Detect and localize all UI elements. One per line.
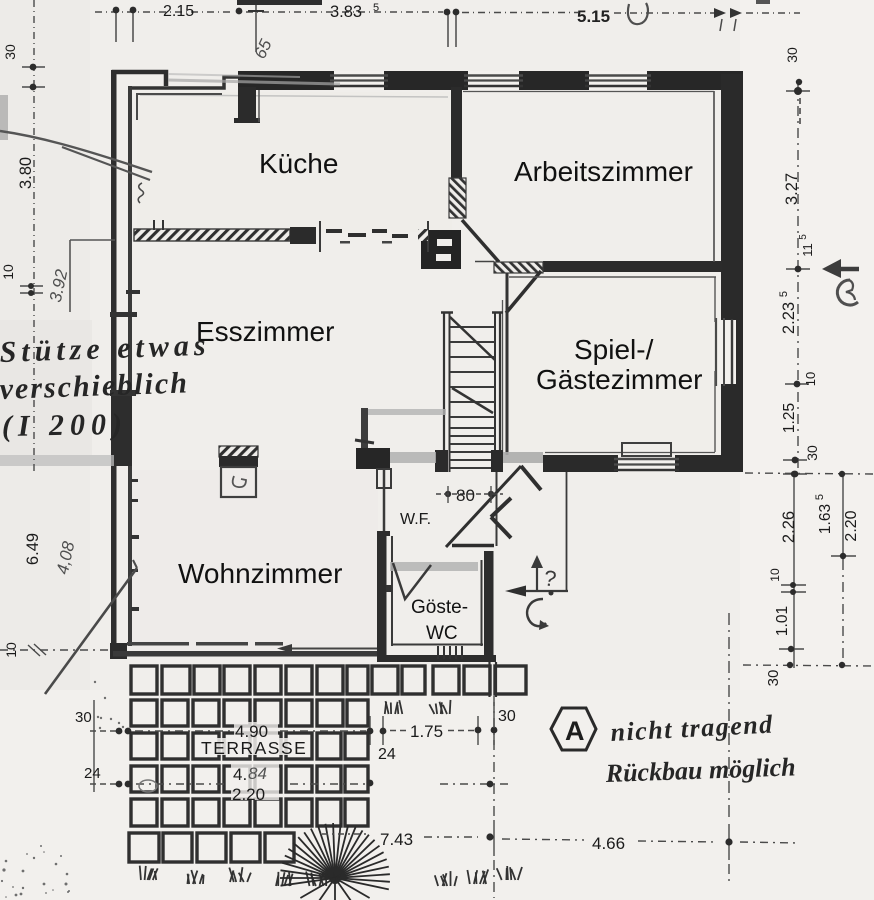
svg-text:6.49: 6.49 xyxy=(24,533,42,565)
svg-text:3.83: 3.83 xyxy=(330,3,362,21)
svg-text:10: 10 xyxy=(0,264,16,280)
svg-text:4.90: 4.90 xyxy=(235,722,268,741)
svg-text:4.66: 4.66 xyxy=(592,834,625,853)
svg-text:24: 24 xyxy=(378,746,396,763)
svg-text:80: 80 xyxy=(456,486,475,505)
svg-text:Spiel-/: Spiel-/ xyxy=(574,334,654,365)
svg-text:30: 30 xyxy=(784,47,800,63)
svg-text:2.20: 2.20 xyxy=(843,510,860,541)
svg-text:30: 30 xyxy=(498,708,516,725)
svg-text:Gästezimmer: Gästezimmer xyxy=(536,364,702,395)
svg-text:10: 10 xyxy=(768,568,782,582)
svg-text:WC: WC xyxy=(426,623,458,644)
svg-text:Arbeitszimmer: Arbeitszimmer xyxy=(514,156,693,187)
svg-text:2.15: 2.15 xyxy=(163,3,194,20)
svg-text:24: 24 xyxy=(84,765,101,782)
svg-text:Wohnzimmer: Wohnzimmer xyxy=(178,558,342,589)
svg-text:W.F.: W.F. xyxy=(400,511,431,528)
svg-text:30: 30 xyxy=(804,445,820,461)
svg-text:11: 11 xyxy=(800,243,815,257)
svg-text:5: 5 xyxy=(373,2,379,14)
svg-text:5: 5 xyxy=(814,494,826,500)
svg-text:verschieblich: verschieblich xyxy=(0,366,189,406)
svg-text:3.27: 3.27 xyxy=(783,173,801,205)
svg-text:Göste-: Göste- xyxy=(411,597,468,618)
svg-text:7.43: 7.43 xyxy=(380,830,413,849)
svg-text:Küche: Küche xyxy=(259,148,338,179)
svg-text:30: 30 xyxy=(75,709,92,726)
svg-text:5: 5 xyxy=(798,234,809,240)
svg-text:4.: 4. xyxy=(233,765,247,784)
svg-text:Esszimmer: Esszimmer xyxy=(196,316,334,347)
svg-text:2.23: 2.23 xyxy=(780,302,798,334)
svg-text:1.01: 1.01 xyxy=(774,606,791,636)
svg-text:1.75: 1.75 xyxy=(410,722,443,741)
svg-text:TERRASSE: TERRASSE xyxy=(201,738,307,758)
svg-text:1.25: 1.25 xyxy=(781,403,798,433)
svg-text:(I 200): (I 200) xyxy=(2,408,129,443)
svg-text:3.80: 3.80 xyxy=(17,157,35,189)
svg-text:2.20: 2.20 xyxy=(232,785,265,804)
svg-text:5: 5 xyxy=(778,291,790,297)
svg-text:5.15: 5.15 xyxy=(577,7,610,26)
svg-text:10: 10 xyxy=(803,372,818,386)
svg-text:1.63: 1.63 xyxy=(817,504,834,534)
svg-text:84: 84 xyxy=(248,764,267,783)
svg-text:A: A xyxy=(565,716,585,746)
svg-text:2.26: 2.26 xyxy=(780,511,798,543)
svg-text:30: 30 xyxy=(765,670,782,687)
svg-text:30: 30 xyxy=(2,44,18,60)
